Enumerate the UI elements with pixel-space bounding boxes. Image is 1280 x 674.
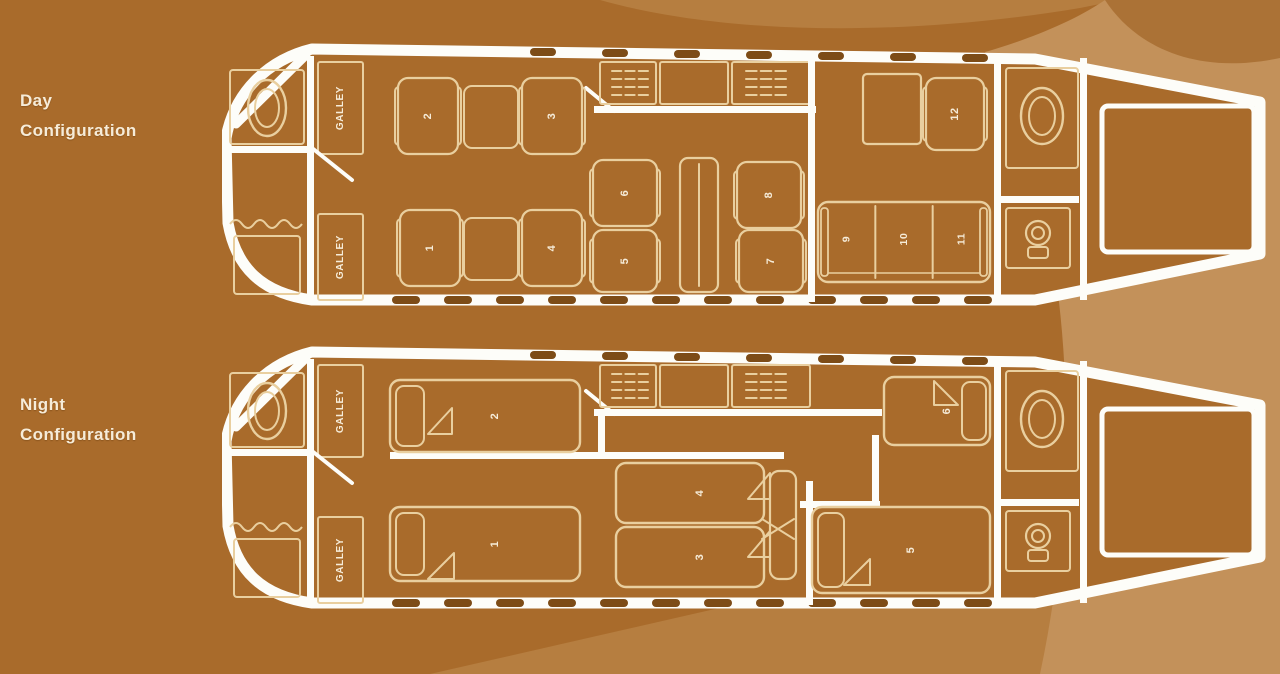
- cabin-window: [964, 296, 992, 304]
- day-config-label: Day Configuration: [20, 86, 137, 146]
- night-config-line2: Configuration: [20, 425, 137, 444]
- cabin-window: [652, 296, 680, 304]
- seat-3-number: 3: [546, 113, 558, 120]
- aircraft-floorplan-page: Day Configuration Night Configuration GA…: [0, 0, 1280, 674]
- galley-label: GALLEY: [335, 235, 346, 279]
- stowage-wall: [594, 106, 816, 113]
- cabin-window: [392, 599, 420, 607]
- cabin-window: [530, 351, 556, 359]
- day-configuration-plane: GALLEYGALLEY231465871291011: [222, 28, 1280, 320]
- cabin-window: [496, 296, 524, 304]
- cabin-window: [962, 357, 988, 365]
- cabin-window: [652, 599, 680, 607]
- seat-12-number: 12: [949, 107, 961, 120]
- cabin-window: [674, 50, 700, 58]
- cabin-window: [600, 599, 628, 607]
- aft-lav-partition: [994, 56, 1001, 302]
- seat-8-number: 8: [763, 192, 775, 199]
- fuselage-outline: [226, 352, 1260, 603]
- bed-1-number: 1: [489, 541, 501, 548]
- cabin-window: [444, 599, 472, 607]
- cabin-window: [548, 296, 576, 304]
- cabin-window: [602, 352, 628, 360]
- divan-seat-11: 11: [955, 233, 967, 245]
- cabin-window: [756, 599, 784, 607]
- cabin-window: [860, 599, 888, 607]
- aft-lav-partition: [994, 359, 1001, 605]
- cabin-window: [444, 296, 472, 304]
- cabin-window: [912, 296, 940, 304]
- cabin-window: [818, 355, 844, 363]
- fwd-lav-wall: [228, 449, 308, 456]
- bed-5-number: 5: [905, 547, 917, 554]
- fwd-lav-wall: [228, 146, 308, 153]
- cabin-window: [818, 52, 844, 60]
- aft-lav-divider: [1001, 196, 1079, 203]
- seat-6-number: 6: [619, 190, 631, 197]
- entry-partition: [307, 56, 314, 302]
- cabin-window: [496, 599, 524, 607]
- day-config-line1: Day: [20, 91, 52, 110]
- seat-7-number: 7: [765, 258, 777, 265]
- cabin-window: [746, 354, 772, 362]
- galley-label: GALLEY: [335, 389, 346, 433]
- cabin-window: [964, 599, 992, 607]
- cabin-window: [602, 49, 628, 57]
- bed-6-number: 6: [941, 408, 953, 415]
- cabin-window: [860, 296, 888, 304]
- divan-seat-9: 9: [841, 236, 853, 242]
- cabin-window: [548, 599, 576, 607]
- seat-2-number: 2: [422, 113, 434, 120]
- entry-partition: [307, 359, 314, 605]
- cabin-window: [756, 296, 784, 304]
- cabin-window: [704, 599, 732, 607]
- divan-seat-10: 10: [898, 233, 910, 246]
- night-config-label: Night Configuration: [20, 390, 137, 450]
- cabin-window: [530, 48, 556, 56]
- seat-4-number: 4: [546, 244, 558, 251]
- cabin-window: [674, 353, 700, 361]
- day-config-line2: Configuration: [20, 121, 137, 140]
- cabin-window: [392, 296, 420, 304]
- galley-label: GALLEY: [335, 86, 346, 130]
- cabin-window: [890, 53, 916, 61]
- night-configuration-plane: GALLEYGALLEY214365: [222, 331, 1280, 623]
- tail-partition: [1080, 361, 1087, 603]
- cabin-window: [746, 51, 772, 59]
- seat-1-number: 1: [424, 245, 436, 252]
- tail-partition: [1080, 58, 1087, 300]
- bed-4-number: 4: [694, 489, 706, 496]
- stateroom-wall: [598, 414, 605, 458]
- cabin-window: [962, 54, 988, 62]
- aft-lav-divider: [1001, 499, 1079, 506]
- night-config-line1: Night: [20, 395, 65, 414]
- mid-aft-partition: [808, 56, 815, 302]
- stowage-wall: [594, 409, 882, 416]
- cabin-window: [890, 356, 916, 364]
- bed-3-number: 3: [694, 554, 706, 561]
- bed-2-number: 2: [489, 413, 501, 420]
- aft-room-wall: [872, 435, 879, 505]
- cabin-window: [600, 296, 628, 304]
- galley-label: GALLEY: [335, 538, 346, 582]
- cabin-window: [912, 599, 940, 607]
- cabin-window: [704, 296, 732, 304]
- seat-5-number: 5: [619, 258, 631, 265]
